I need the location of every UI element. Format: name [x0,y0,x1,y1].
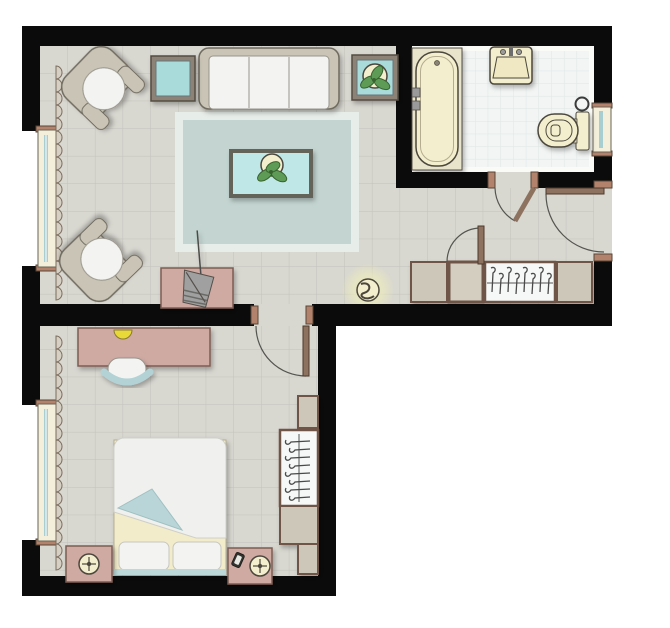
wall-bathroom-left [396,26,412,188]
wall-right-lower [594,254,612,326]
wall-right-upper [594,26,612,108]
door-jamb [251,306,258,324]
window-glass [599,111,603,148]
wardrobe-cabinet [298,544,318,574]
window-living [36,126,56,271]
bathtub [412,48,462,170]
wardrobe-cabinet [280,506,318,544]
side-table-with-plant [352,55,398,100]
door-jamb [594,254,612,261]
wardrobe-open-cabinet [449,262,483,302]
pillow [173,542,221,570]
desk [78,328,210,366]
hall-wardrobe [411,262,592,302]
bed-headboard-strip [114,569,226,575]
entry-door-threshold [594,188,612,254]
wall-bedroom-right [318,304,336,596]
bathtub-drain [435,61,440,66]
wall-left-middle [22,266,40,405]
floor-plan-page [0,0,670,628]
door-leaf [303,326,309,376]
basin-tap-handle [516,49,521,54]
window-bathroom [592,103,612,156]
bathtub-faucet [412,88,420,97]
bathtub-basin [416,52,458,166]
door-jamb [594,181,612,188]
basin-tap-handle [500,49,505,54]
floor-lamp [357,279,379,301]
table-lamp-icon [79,554,99,574]
wash-basin [490,47,532,84]
wall-bedroom-top-right [312,304,336,326]
wall-hall-bottom [318,304,612,326]
wardrobe-cabinet [411,262,447,302]
bathtub-faucet [412,101,420,110]
side-table-top [156,61,190,96]
wall-left-upper [22,26,40,131]
door-jamb [488,172,495,188]
basin-spout [509,48,513,56]
door-leaf [478,226,484,264]
door-leaf [546,188,604,194]
pillow [119,542,169,570]
wardrobe-cabinet [298,396,318,428]
bedroom-door-threshold [254,304,312,326]
wall-top [22,26,612,46]
wardrobe-hanger-section [485,262,555,302]
side-table [151,56,195,101]
table-lamp-icon [250,556,270,576]
door-jamb [306,306,313,324]
sofa [199,48,339,109]
window-bedroom [36,400,56,545]
double-bed [114,438,226,575]
floor-plan-drawing [0,0,670,628]
nightstand-left [66,546,112,582]
nightstand-right [228,548,272,584]
sofa-cushions [209,56,329,109]
wall-bathroom-bottom-left [396,172,488,188]
basin-bowl [493,57,529,78]
desk-chair [104,358,150,382]
toilet [538,112,589,150]
door-jamb [531,172,538,188]
coffee-table [229,149,313,198]
wardrobe-cabinet [557,262,592,302]
